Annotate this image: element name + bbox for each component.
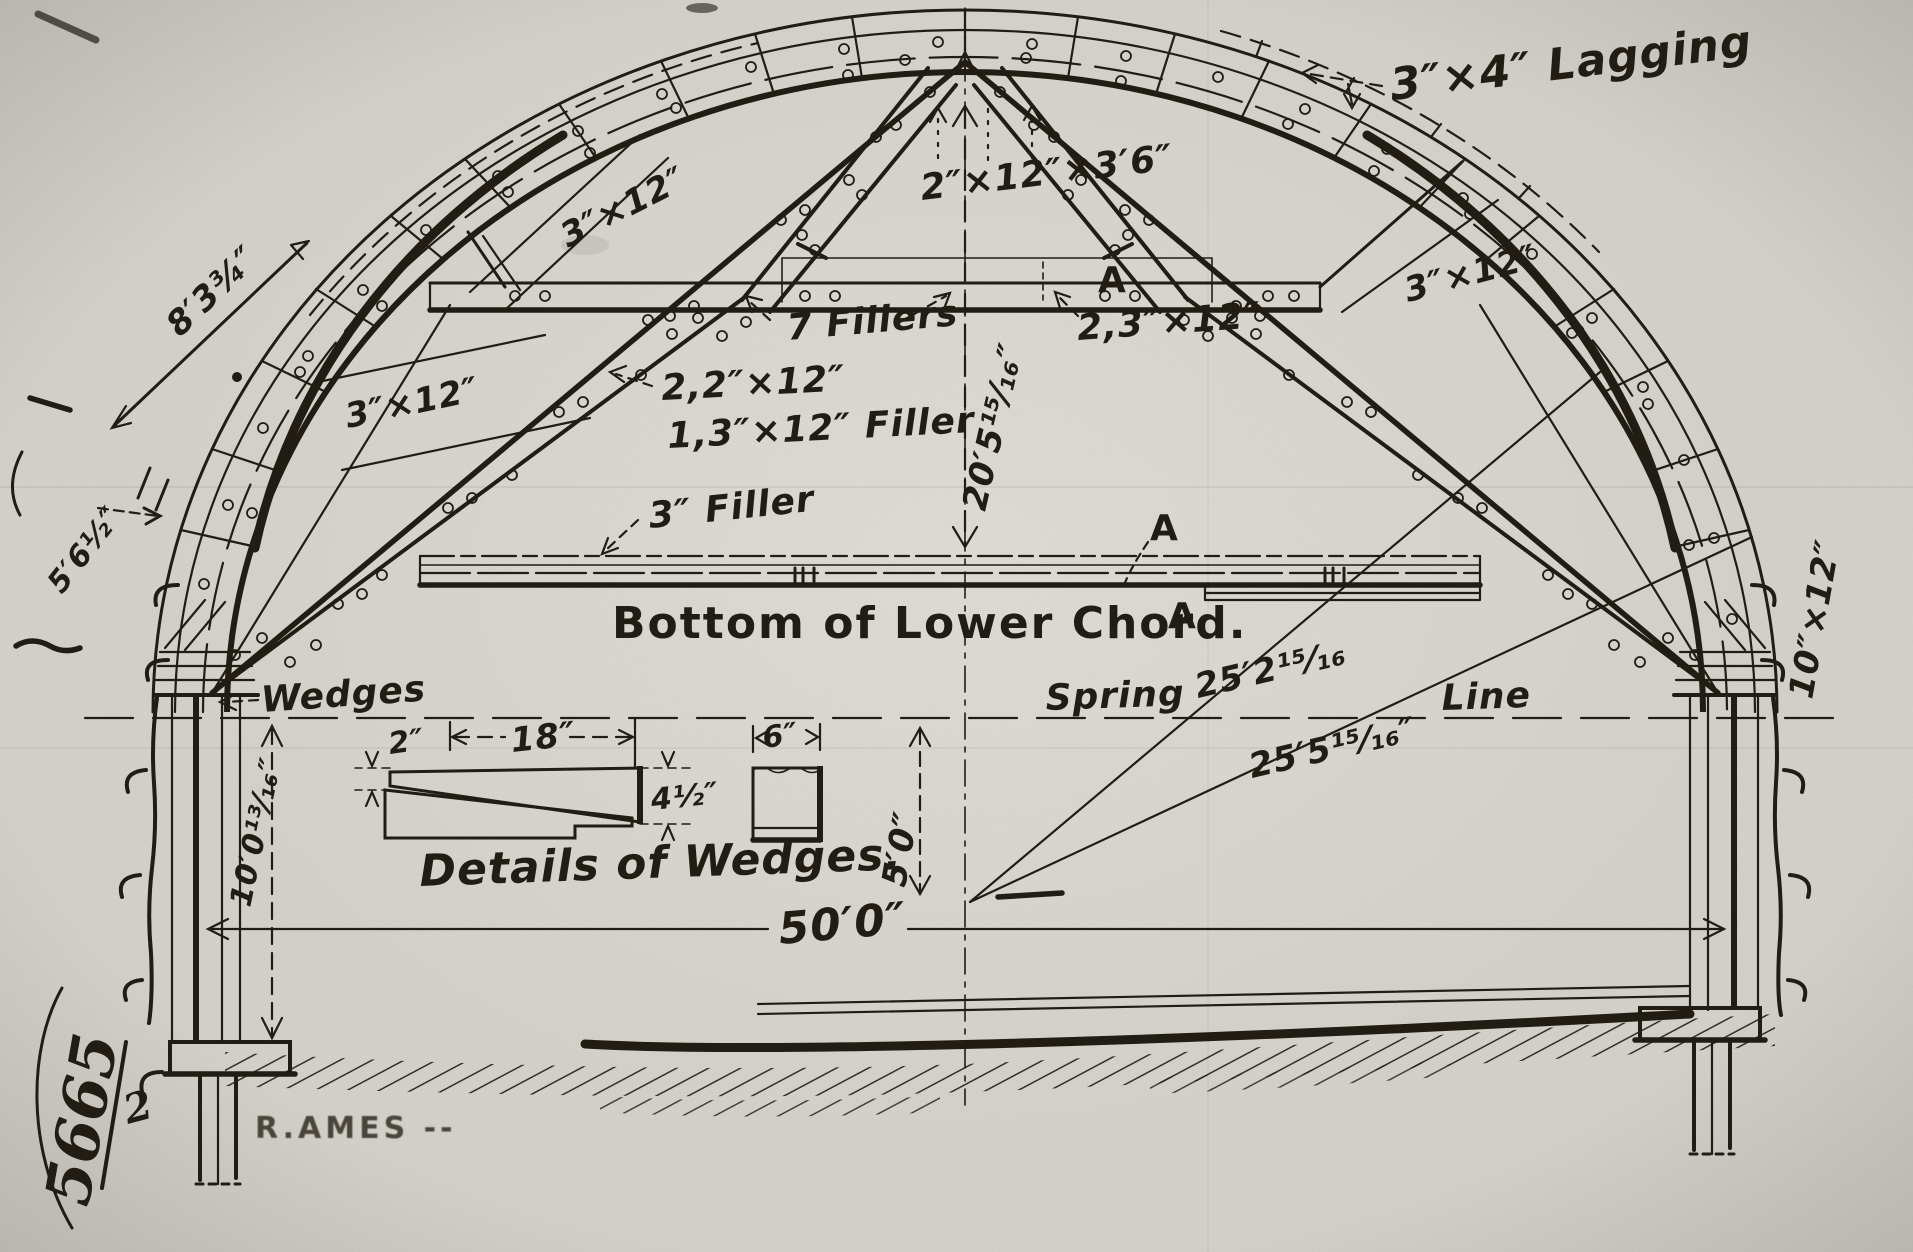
centering-drawing: 3″×4″ Lagging 2″×12″×3′6″ 3″×12″ 3″×12″ … bbox=[0, 0, 1913, 1252]
dim-wedge-thin: 2″ bbox=[386, 722, 427, 762]
label-line: Line bbox=[1441, 675, 1532, 719]
caption-bottom-chord: Bottom of Lower Chord. bbox=[612, 598, 1247, 649]
dim-wedge-thick: 4½″ bbox=[648, 776, 721, 818]
dim-wedge-length: 18″ bbox=[509, 714, 578, 761]
section-a-strip-top: A bbox=[1150, 508, 1178, 549]
label-spring: Spring bbox=[1045, 673, 1186, 719]
dim-wedge-width: 6″ bbox=[760, 716, 801, 756]
section-a-chord: A bbox=[1098, 260, 1126, 301]
paper-sheet: 3″×4″ Lagging 2″×12″×3′6″ 3″×12″ 3″×12″ … bbox=[0, 0, 1913, 1252]
stamp-text: R.AMES -- bbox=[255, 1111, 457, 1146]
